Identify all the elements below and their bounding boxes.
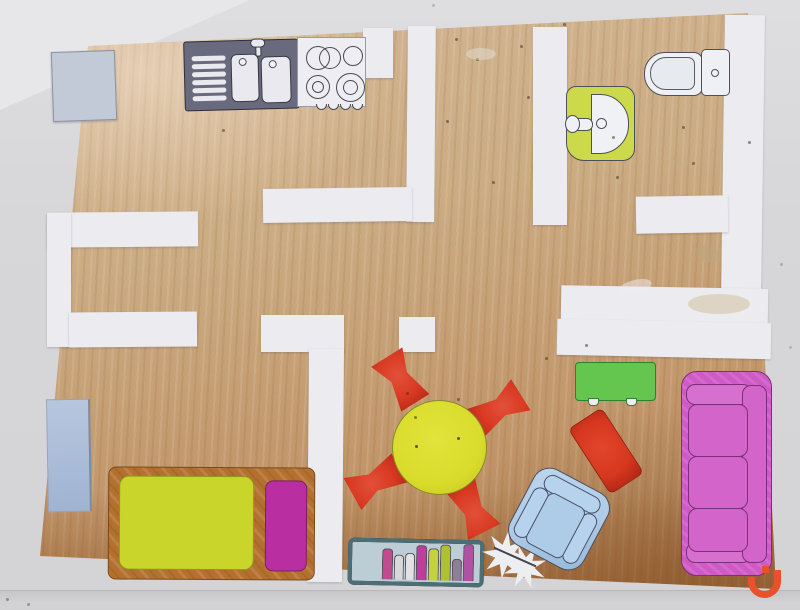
bed-pillow <box>265 480 307 571</box>
blue-rug <box>46 399 92 513</box>
wall-bathroom-bottom <box>636 195 729 234</box>
burner <box>343 46 363 66</box>
bed-mattress <box>119 476 254 571</box>
wood-speck <box>682 126 685 129</box>
wood-speck <box>692 162 695 165</box>
drainboard-slat <box>193 95 227 101</box>
flush-button <box>711 69 719 77</box>
bed-frame <box>108 466 316 580</box>
book <box>394 555 405 580</box>
toilet-seat <box>650 57 695 90</box>
stove-knob <box>328 104 339 110</box>
table-mark <box>415 445 418 448</box>
wall-left-room-bottom <box>69 311 197 347</box>
wood-speck <box>457 398 460 401</box>
burner-ring <box>343 80 358 95</box>
stove <box>297 37 366 107</box>
wood-speck <box>492 181 495 184</box>
wall-living-band-lower <box>557 319 772 359</box>
sofa-cushion <box>688 404 748 457</box>
wood-speck <box>563 23 566 26</box>
kitchen-sink-unit <box>183 39 300 112</box>
sofa-cushion <box>688 508 748 552</box>
stain <box>693 242 723 266</box>
fridge <box>51 50 117 122</box>
wood-speck <box>455 38 458 41</box>
green-table <box>575 362 656 401</box>
wall-kitchen-bottom <box>263 187 412 223</box>
toilet-bowl <box>644 52 703 96</box>
book-row <box>382 542 475 581</box>
wood-speck <box>527 96 530 99</box>
stove-knob <box>316 104 327 110</box>
drainboard-slat <box>192 63 226 69</box>
dining-table <box>392 400 487 495</box>
sink-drain <box>596 118 607 129</box>
drainboard-slat <box>192 79 226 85</box>
scuff-mark <box>466 48 496 60</box>
stove-knob <box>352 104 363 110</box>
wood-speck <box>748 141 751 144</box>
wood-speck <box>222 129 225 132</box>
book <box>405 553 416 580</box>
bathroom-sink <box>566 86 635 161</box>
drainboard-slat <box>191 55 225 61</box>
burner <box>319 47 341 69</box>
faucet-handle <box>565 115 580 133</box>
wood-speck <box>414 416 417 419</box>
sofa-cushion <box>688 456 748 509</box>
book <box>440 545 452 581</box>
drainboard-slat <box>192 71 226 77</box>
pink-sofa <box>681 371 772 576</box>
faucet-spout <box>250 38 265 47</box>
wall-left-room-side <box>47 213 71 347</box>
wood-speck <box>520 45 523 48</box>
wall-kitchen-stub <box>363 28 393 78</box>
book <box>416 545 428 580</box>
table-mark <box>457 437 460 440</box>
burner-ring <box>312 81 324 93</box>
stove-knob <box>340 104 351 110</box>
photo-of-floorplan-model <box>0 0 800 610</box>
table-leg <box>626 398 637 406</box>
drainboard-slat <box>192 87 226 93</box>
toilet-tank <box>701 49 730 96</box>
wall-hall-left <box>261 315 344 352</box>
watermark-logo <box>747 566 793 600</box>
book <box>428 548 440 580</box>
wood-speck <box>406 392 409 395</box>
wall-hall-stub <box>399 317 435 352</box>
wood-speck <box>616 176 619 179</box>
logo-arm <box>774 570 781 582</box>
floorplan-scene <box>0 0 800 610</box>
wood-speck <box>612 136 615 139</box>
bookshelf <box>348 538 485 588</box>
stain <box>688 294 750 314</box>
book <box>382 548 394 579</box>
wood-speck <box>545 357 548 360</box>
logo-dot <box>762 566 769 573</box>
book <box>452 559 462 581</box>
wood-speck <box>446 120 449 123</box>
table-leg <box>588 398 599 406</box>
wood-speck <box>585 344 588 347</box>
wall-vertical-bathroom <box>533 27 567 225</box>
book <box>463 544 475 581</box>
